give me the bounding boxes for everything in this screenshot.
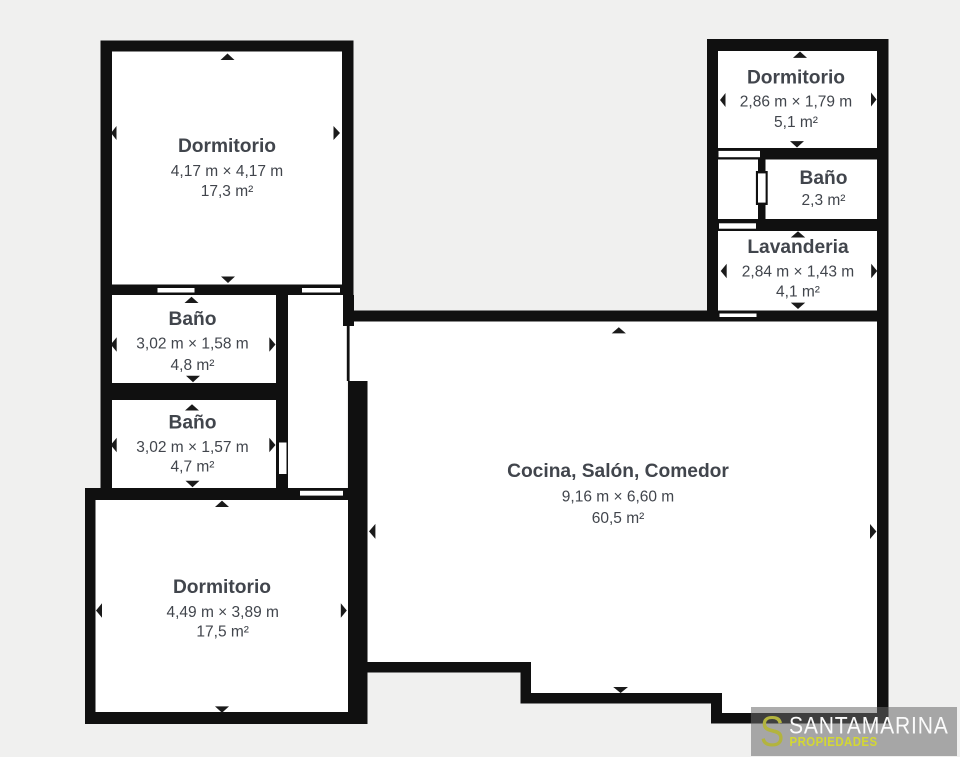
svg-text:Dormitorio: Dormitorio	[173, 577, 271, 598]
svg-text:3,02 m × 1,57 m: 3,02 m × 1,57 m	[136, 439, 248, 456]
svg-text:9,16 m × 6,60 m: 9,16 m × 6,60 m	[562, 489, 674, 506]
svg-text:4,7 m²: 4,7 m²	[171, 459, 215, 476]
svg-text:4,1 m²: 4,1 m²	[776, 284, 820, 301]
svg-text:2,3 m²: 2,3 m²	[802, 192, 846, 209]
svg-text:4,17 m × 4,17 m: 4,17 m × 4,17 m	[171, 163, 283, 180]
svg-text:3,02 m × 1,58 m: 3,02 m × 1,58 m	[136, 336, 248, 353]
svg-text:S: S	[760, 708, 784, 755]
svg-text:PROPIEDADES: PROPIEDADES	[790, 734, 878, 749]
svg-text:60,5 m²: 60,5 m²	[592, 510, 645, 527]
svg-text:5,1 m²: 5,1 m²	[774, 114, 818, 131]
svg-text:2,84 m × 1,43 m: 2,84 m × 1,43 m	[742, 264, 854, 281]
svg-text:4,49 m × 3,89 m: 4,49 m × 3,89 m	[166, 604, 278, 621]
svg-text:Lavanderia: Lavanderia	[747, 237, 849, 258]
svg-text:17,3 m²: 17,3 m²	[201, 183, 254, 200]
svg-text:Dormitorio: Dormitorio	[747, 68, 845, 89]
svg-text:Cocina, Salón, Comedor: Cocina, Salón, Comedor	[507, 461, 729, 482]
svg-text:Baño: Baño	[169, 309, 217, 330]
svg-text:2,86 m × 1,79 m: 2,86 m × 1,79 m	[740, 94, 852, 111]
svg-text:Baño: Baño	[169, 413, 217, 434]
svg-text:17,5 m²: 17,5 m²	[196, 624, 249, 641]
svg-text:Baño: Baño	[800, 168, 848, 189]
svg-text:4,8 m²: 4,8 m²	[171, 357, 215, 374]
svg-text:Dormitorio: Dormitorio	[178, 136, 276, 157]
